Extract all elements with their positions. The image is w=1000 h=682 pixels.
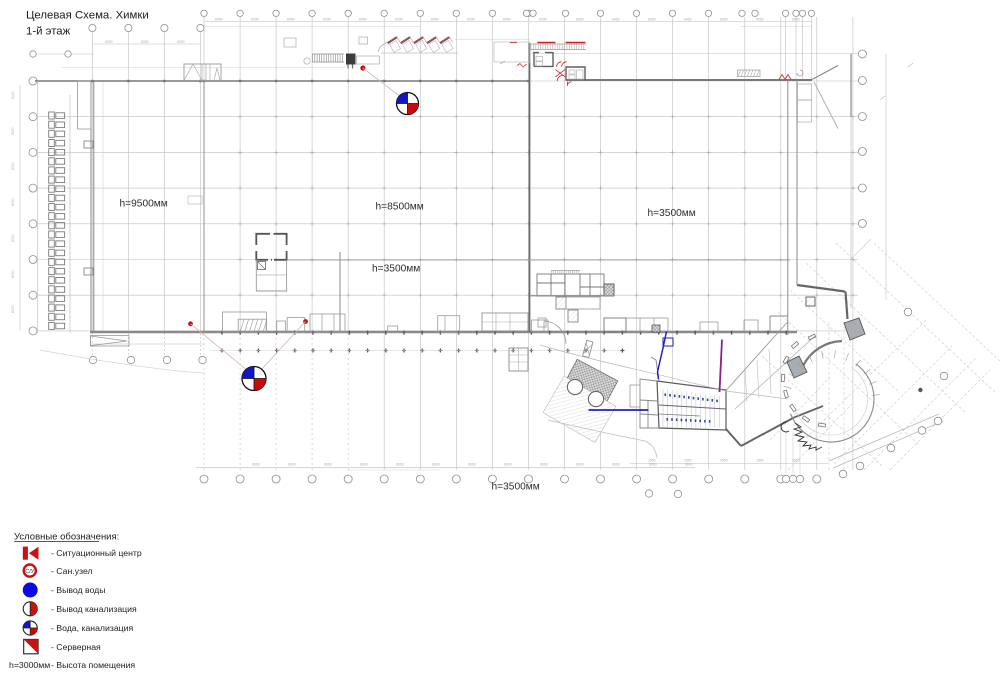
svg-text:6000: 6000	[11, 270, 15, 278]
svg-text:- Сан.узел: - Сан.узел	[51, 566, 93, 576]
svg-text:1500: 1500	[648, 459, 656, 463]
svg-text:6000: 6000	[504, 463, 512, 467]
svg-text:h=3500мм: h=3500мм	[372, 264, 420, 275]
svg-text:6000: 6000	[11, 127, 15, 135]
svg-text:1500: 1500	[684, 459, 692, 463]
svg-text:h=9500мм: h=9500мм	[120, 199, 168, 210]
svg-text:6000: 6000	[396, 463, 404, 467]
svg-text:1500: 1500	[720, 459, 728, 463]
svg-text:h=3000мм: h=3000мм	[9, 660, 50, 670]
svg-text:6000: 6000	[11, 91, 15, 99]
svg-text:6000: 6000	[395, 17, 403, 21]
svg-text:6000: 6000	[649, 463, 657, 467]
svg-text:6000: 6000	[685, 463, 693, 467]
svg-text:6000: 6000	[287, 17, 295, 21]
svg-text:- Вода, канализация: - Вода, канализация	[51, 623, 133, 633]
svg-text:h=3500мм: h=3500мм	[492, 482, 540, 493]
svg-text:6000: 6000	[359, 17, 367, 21]
svg-text:6000: 6000	[11, 162, 15, 170]
svg-text:6000: 6000	[141, 40, 149, 44]
svg-text:Целевая Схема. Химки: Целевая Схема. Химки	[26, 10, 149, 22]
svg-text:Условные обозначения:: Условные обозначения:	[14, 532, 119, 543]
svg-text:6000: 6000	[215, 17, 223, 21]
svg-text:6000: 6000	[288, 463, 296, 467]
svg-text:С/У: С/У	[25, 569, 35, 575]
svg-text:6000: 6000	[431, 17, 439, 21]
svg-text:- Серверная: - Серверная	[51, 642, 101, 652]
svg-text:6000: 6000	[467, 17, 475, 21]
svg-text:6000: 6000	[252, 463, 260, 467]
svg-text:- Высота помещения: - Высота помещения	[51, 660, 135, 670]
svg-text:6000: 6000	[503, 17, 511, 21]
svg-text:6000: 6000	[684, 17, 692, 21]
svg-text:6000: 6000	[105, 40, 113, 44]
svg-text:1500: 1500	[792, 459, 800, 463]
svg-text:6000: 6000	[792, 17, 800, 21]
svg-text:6000: 6000	[612, 17, 620, 21]
svg-text:6000: 6000	[576, 463, 584, 467]
svg-text:6000: 6000	[539, 17, 547, 21]
svg-text:6000: 6000	[576, 17, 584, 21]
svg-text:- Вывод воды: - Вывод воды	[51, 585, 105, 595]
svg-text:6000: 6000	[11, 305, 15, 313]
svg-text:6000: 6000	[468, 463, 476, 467]
svg-text:6000: 6000	[756, 17, 764, 21]
svg-text:6000: 6000	[360, 463, 368, 467]
svg-text:- Ситуационный центр: - Ситуационный центр	[51, 548, 142, 558]
svg-text:6000: 6000	[432, 463, 440, 467]
svg-text:6000: 6000	[323, 17, 331, 21]
svg-text:6000: 6000	[324, 463, 332, 467]
svg-text:h=3500мм: h=3500мм	[648, 208, 696, 219]
svg-text:1-й этаж: 1-й этаж	[26, 26, 71, 38]
svg-text:6000: 6000	[540, 463, 548, 467]
svg-text:1500: 1500	[756, 459, 764, 463]
svg-text:- Вывод канализация: - Вывод канализация	[51, 604, 137, 614]
svg-text:6000: 6000	[177, 40, 185, 44]
svg-text:6000: 6000	[251, 17, 259, 21]
svg-text:6000: 6000	[720, 17, 728, 21]
svg-text:h=8500мм: h=8500мм	[376, 202, 424, 213]
svg-text:6000: 6000	[11, 198, 15, 206]
svg-text:6000: 6000	[648, 17, 656, 21]
svg-text:6000: 6000	[11, 234, 15, 242]
svg-text:6000: 6000	[612, 463, 620, 467]
